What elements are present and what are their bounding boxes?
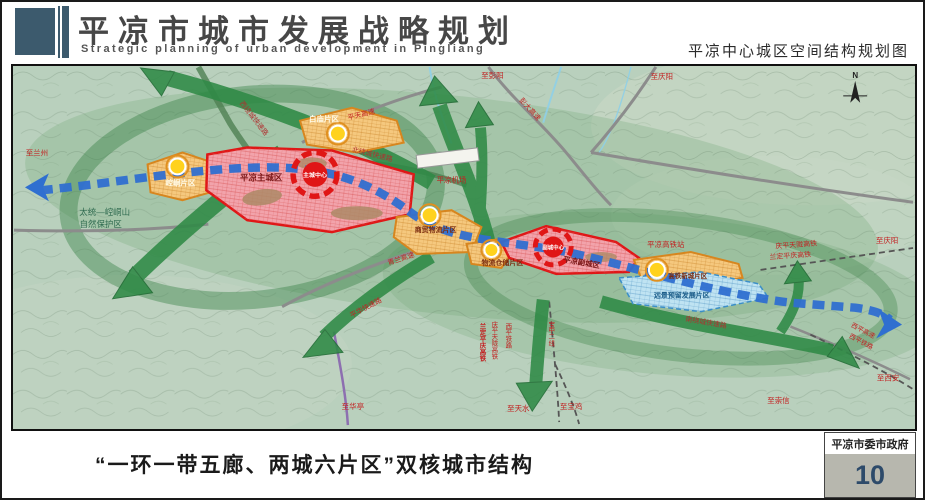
header-accent-bar xyxy=(62,6,69,58)
label-main-center: 主城中心 xyxy=(303,171,327,179)
label-to-qingyang-top: 至庆阳 xyxy=(651,71,673,81)
label-kongtong: 崆峒片区 xyxy=(166,177,196,187)
label-baimiao: 白庙片区 xyxy=(309,114,339,124)
label-to-baoji: 至宝鸡 xyxy=(560,401,582,411)
label-to-qingyang-right: 至庆阳 xyxy=(876,235,898,245)
org-box: 平凉市委市政府 10 xyxy=(824,432,916,498)
label-to-tianshui: 至天水 xyxy=(507,403,530,413)
label-to-pengyang: 至彭阳 xyxy=(481,70,503,80)
label-nature-reserve-2: 自然保护区 xyxy=(80,219,123,229)
page-subtitle-en: Strategic planning of urban development … xyxy=(81,43,485,55)
footer-caption: “一环一带五廊、两城六片区”双核城市结构 xyxy=(95,449,534,479)
label-hsr-station: 平凉高铁站 xyxy=(647,239,685,249)
compass-n: N xyxy=(852,71,858,80)
label-to-huating: 至华亭 xyxy=(342,401,364,411)
label-baozhong-line2-v: 宝中二线 xyxy=(547,319,555,346)
page-number: 10 xyxy=(825,454,915,497)
label-xiping-rail-v: 西平铁路 xyxy=(504,322,512,349)
org-label: 平凉市委市政府 xyxy=(825,433,915,454)
planning-map: 主城中心 副城中心 平凉主城区 平凉副城区 崆峒片区 白庙片区 商贸物流片区 物… xyxy=(11,64,917,431)
label-warehouse: 物流仓储片区 xyxy=(481,258,523,267)
label-to-chongxin: 至崇信 xyxy=(767,395,790,405)
header: 平凉市城市发展战略规划 Strategic planning of urban … xyxy=(2,2,923,64)
footer: “一环一带五廊、两城六片区”双核城市结构 平凉市委市政府 10 xyxy=(2,431,923,500)
label-airport: 平凉机场 xyxy=(437,174,467,184)
label-sub-center: 副城中心 xyxy=(542,243,564,251)
header-logo-square xyxy=(15,8,55,55)
label-trade-logistics: 商贸物流片区 xyxy=(415,225,457,234)
label-nature-reserve-1: 太统—崆峒山 xyxy=(79,207,130,217)
page: 平凉市城市发展战略规划 Strategic planning of urban … xyxy=(0,0,925,500)
label-hsr-newtown: 高铁新城片区 xyxy=(668,271,707,280)
header-accent-bar-thin xyxy=(58,6,60,58)
label-to-xian: 至西安 xyxy=(877,372,899,382)
label-reserved: 远景预留发展片区 xyxy=(654,291,710,300)
map-subtitle: 平凉中心城区空间结构规划图 xyxy=(688,40,909,61)
label-main-city: 平凉主城区 xyxy=(240,172,283,182)
label-to-lanzhou: 至兰州 xyxy=(26,148,48,158)
label-qingping-hsr-v: 庆平天陇高铁 xyxy=(490,319,498,360)
